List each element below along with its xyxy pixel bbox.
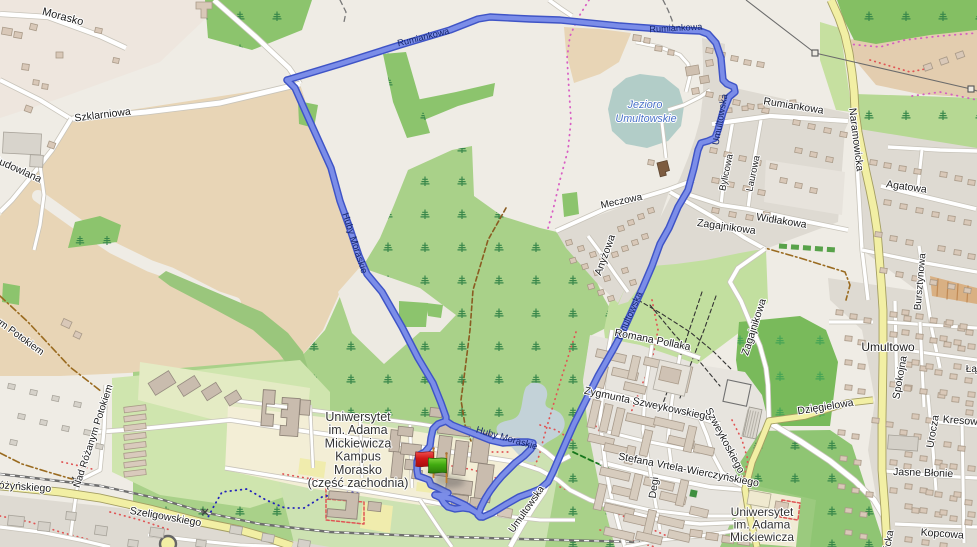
- svg-text:Mickiewicza: Mickiewicza: [325, 436, 392, 450]
- svg-text:Morasko: Morasko: [334, 463, 382, 477]
- svg-text:Umultowo: Umultowo: [861, 340, 915, 354]
- svg-text:Kampus: Kampus: [335, 450, 381, 464]
- svg-text:im. Adama: im. Adama: [328, 423, 387, 437]
- svg-text:Mickiewicza: Mickiewicza: [730, 530, 794, 544]
- svg-text:Umultowskie: Umultowskie: [615, 113, 676, 125]
- svg-text:Jasne Błonie: Jasne Błonie: [893, 466, 954, 480]
- svg-text:Łąkowa: Łąkowa: [966, 364, 977, 375]
- svg-text:Uniwersytet: Uniwersytet: [325, 410, 391, 424]
- svg-text:(część zachodnia): (część zachodnia): [308, 476, 409, 490]
- svg-text:Jezioro: Jezioro: [627, 99, 663, 111]
